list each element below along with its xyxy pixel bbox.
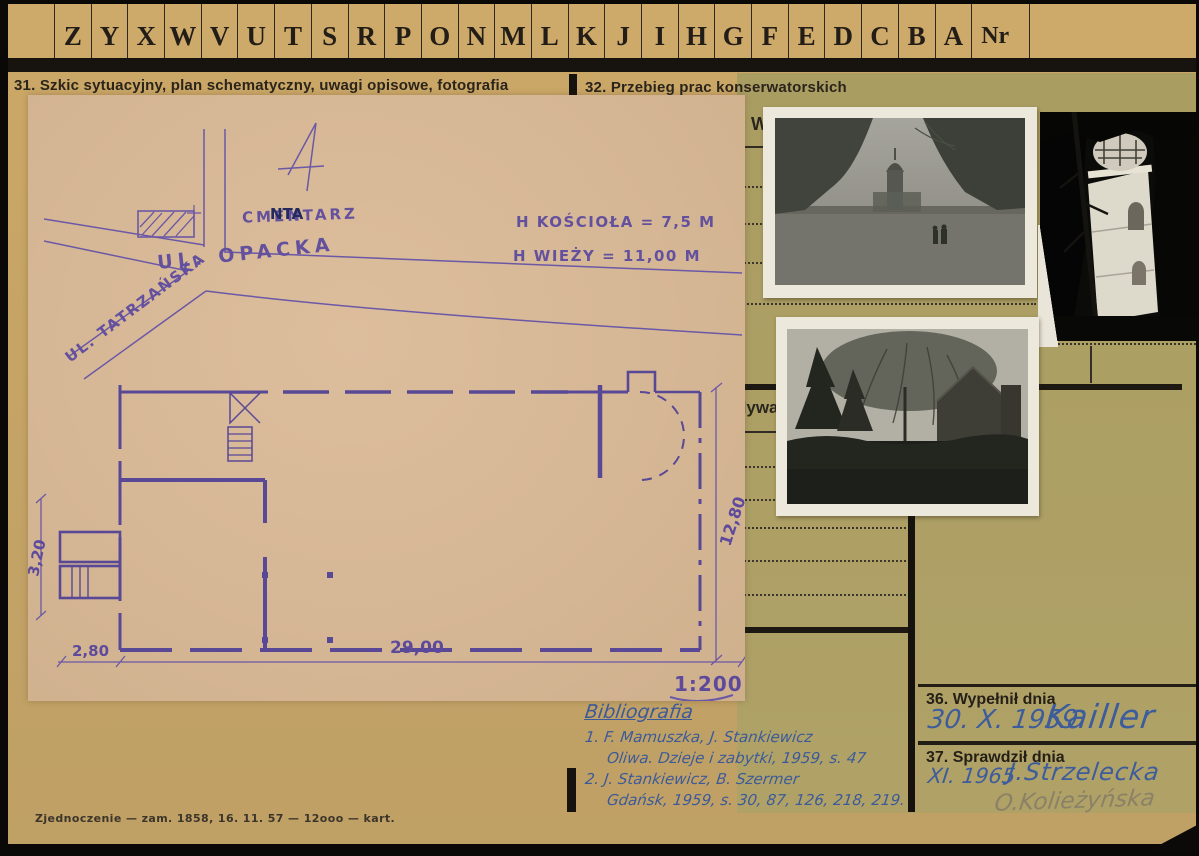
tab-letter: C [861,4,898,58]
photo-church-trees [776,317,1039,516]
tab-letter: F [751,4,788,58]
street-label-tatrzanska: UL. TATRZAŃSKA [61,248,209,366]
box-36-top-rule [918,684,1196,687]
floor-plan [60,372,700,650]
section-divider-bottom [567,768,576,812]
tab-letter: L [531,4,568,58]
tab-letter: K [568,4,605,58]
photo-tower-image [1040,112,1199,341]
printers-imprint: Zjednoczenie — zam. 1858, 16. 11. 57 — 1… [35,812,395,825]
photo-church-distant [763,107,1037,298]
bibliography-entry: Gdańsk, 1959, s. 30, 87, 126, 218, 219. [606,790,917,811]
tab-letter: D [824,4,861,58]
tab-letter: B [898,4,935,58]
tab-letter: G [714,4,751,58]
tab-letter: X [127,4,164,58]
box-37-top-rule [918,741,1196,745]
dim-main-width: 29,00 [390,638,444,658]
cemetery-stamp-overlay: NTA [270,205,304,223]
photo-tower [1040,112,1199,341]
bibliography-entry: 2. J. Stankiewicz, B. Szermer [584,769,917,790]
tab-letter: S [311,4,348,58]
dim-depth: 12,80 [716,494,745,548]
tab-nr-label: Nr [971,4,1029,58]
index-tab-strip: ZYXWVUTSRPONMLKJIHGFEDCBA Nr [8,4,1196,58]
tab-letter: J [604,4,641,58]
tab-letter: T [274,4,311,58]
tab-letter: Z [54,4,91,58]
divider-bar [8,58,1196,72]
form-rule-dotted [737,594,906,596]
north-arrow-icon [278,123,324,191]
tab-letter: Y [91,4,128,58]
form-rule-thick [1038,384,1182,390]
plan-scale: 1:200 [674,672,743,696]
tab-letter: P [384,4,421,58]
tab-letter: E [788,4,825,58]
tab-letter: N [458,4,495,58]
form-rule-vertical [1090,346,1092,383]
box-37-signature: J.Strzelecka [1006,758,1161,786]
bibliography-entries: 1. F. Mamuszka, J. StankiewiczOliwa. Dzi… [585,727,915,811]
form-rule-thick [737,627,908,633]
tab-letter: A [935,4,972,58]
sketch-paper: CMENTARZ NTA UL. OPACKA UL. TATRZAŃSKA H… [28,95,745,701]
form-rule-dotted [740,303,1036,305]
tower-height-note: H WIEŻY = 11,00 M [513,246,701,265]
section-31-header: 31. Szkic sytuacyjny, plan schematyczny,… [14,77,508,94]
section-divider-top [569,74,577,97]
photo-church-trees-image [787,329,1028,504]
tab-letter: M [494,4,531,58]
scanned-record-card: ZYXWVUTSRPONMLKJIHGFEDCBA Nr 31. Szkic s… [0,0,1199,856]
tab-letter: U [237,4,274,58]
dim-annex-width: 2,80 [72,642,109,660]
tab-strip-end [1029,4,1196,58]
box-36-signature: Kailler [1044,697,1158,736]
plan-columns [262,572,333,643]
bibliography-title: Bibliografia [584,701,917,723]
tab-letter: H [678,4,715,58]
church-height-note: H KOŚCIOŁA = 7,5 M [516,212,716,231]
photo-church-distant-image [775,118,1025,285]
tab-letter: W [164,4,201,58]
form-rule-dotted [737,560,906,562]
tab-letter: I [641,4,678,58]
index-letters: ZYXWVUTSRPONMLKJIHGFEDCBA [54,4,971,58]
box-37-date: XI. 1965 [927,764,1017,788]
form-rule-dotted [1046,343,1196,345]
tab-letter: O [421,4,458,58]
dim-annex-depth: 3,20 [28,538,50,578]
tab-letter: V [201,4,238,58]
form-rule-dotted [737,527,906,529]
bibliography-entry: Oliwa. Dzieje i zabytki, 1959, s. 47 [606,748,917,769]
tab-letter: R [348,4,385,58]
bibliography-block: Bibliografia 1. F. Mamuszka, J. Stankiew… [585,701,915,811]
bibliography-entry: 1. F. Mamuszka, J. Stankiewicz [584,727,917,748]
section-32-header: 32. Przebieg prac konserwatorskich [585,79,847,96]
site-map-and-floor-plan: CMENTARZ NTA UL. OPACKA UL. TATRZAŃSKA H… [28,95,745,701]
